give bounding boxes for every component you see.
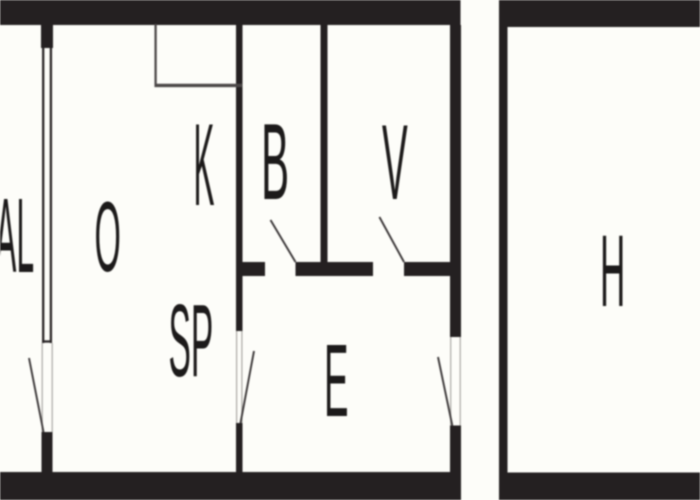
svg-text:H: H [600, 215, 625, 329]
svg-text:AL: AL [0, 176, 34, 295]
svg-text:V: V [382, 103, 408, 223]
svg-text:SP: SP [169, 283, 214, 399]
svg-text:K: K [194, 100, 215, 231]
svg-text:O: O [95, 181, 121, 292]
svg-text:E: E [324, 324, 349, 439]
svg-text:B: B [261, 100, 289, 223]
